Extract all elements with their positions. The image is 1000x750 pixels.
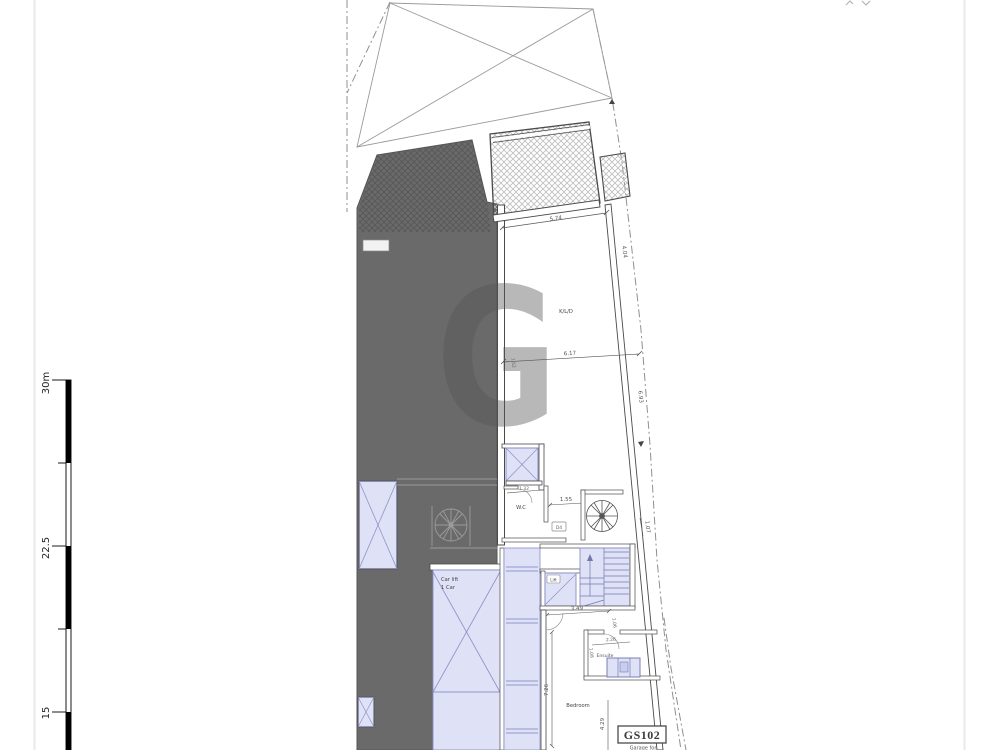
door-tag: D4 — [556, 525, 562, 531]
dim-left-wall: 1.52 — [509, 358, 516, 369]
room-label-bedroom: Bedroom — [566, 703, 589, 709]
bedroom-ensuite: 2.26 1.08 Ensuite Bedroom 7.26 4.29 GS10… — [541, 610, 666, 750]
dim-right-lower: 6.93 — [636, 390, 643, 403]
dim-top: 5.74 — [549, 215, 562, 223]
room-label-car-lift-2: 1 Car — [441, 585, 456, 591]
dim-bedroom-r: 4.29 — [600, 717, 606, 730]
dim-corridor: 3.49 — [571, 606, 584, 613]
car-lift-platform — [433, 570, 502, 750]
scale-label-22-5: 22.5 — [41, 537, 52, 559]
unit-tag: GS102 — [624, 728, 661, 742]
room-label-kld: K/L/D — [559, 309, 573, 315]
dim-mid: 6.17 — [564, 351, 577, 358]
cropped-top-marks — [846, 1, 870, 5]
roof-hatch — [359, 140, 491, 232]
service-core: 1.32 W.C 1.55 D4 1.07 — [502, 444, 651, 542]
scale-bar: 30m 22.5 15 — [41, 372, 71, 750]
scale-label-15: 15 — [41, 707, 52, 720]
unit-tag-sub: Garage for — [630, 746, 658, 750]
watermark-logo: G — [436, 249, 558, 470]
watermark-letter: G — [436, 249, 558, 470]
stairwell — [580, 548, 630, 606]
floor-plan-drawing: G 5.74 K/L/D 6.17 1.52 4.04 6.93 1.32 W.… — [0, 0, 1000, 750]
scale-label-30m: 30m — [41, 372, 52, 394]
dim-ensuite-h: 1.08 — [587, 648, 594, 659]
dim-bedroom-h: 7.26 — [544, 683, 550, 696]
wall-opening-notch — [363, 240, 389, 251]
dim-wc: 1.55 — [560, 497, 573, 503]
dim-stair-side: 1.07 — [643, 520, 650, 533]
room-label-wc: W.C — [516, 505, 526, 511]
corridor — [504, 548, 540, 750]
dim-ensuite-w: 2.26 — [606, 637, 616, 644]
spiral-stair — [587, 501, 618, 532]
drawing-sheet: G 5.74 K/L/D 6.17 1.52 4.04 6.93 1.32 W.… — [0, 0, 1000, 750]
lift-tag: Lift — [550, 578, 557, 583]
terrace-hatch-small — [600, 153, 630, 201]
dim-stair-bottom: 1.06 — [610, 618, 617, 629]
dim-right-upper: 4.04 — [620, 245, 628, 258]
room-label-car-lift-1: Car lift — [441, 577, 458, 583]
